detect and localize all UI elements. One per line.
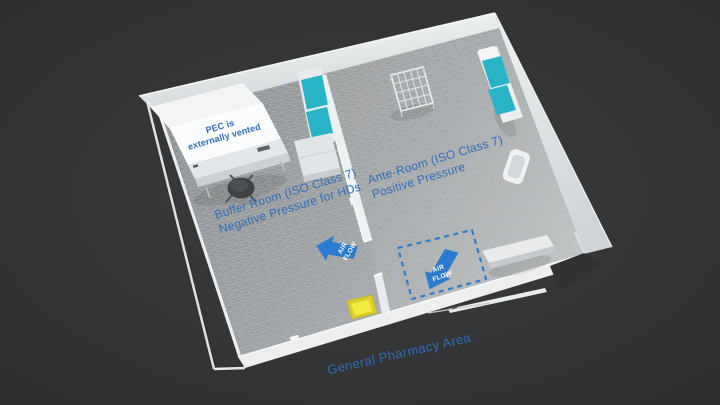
cleanroom-3d-viewport[interactable]: PEC is externally vented bbox=[0, 0, 720, 405]
stool-seat-highlight bbox=[230, 179, 248, 192]
left-wall-bottom-cap bbox=[214, 368, 245, 369]
scene-canvas[interactable]: PEC is externally vented bbox=[0, 0, 720, 405]
